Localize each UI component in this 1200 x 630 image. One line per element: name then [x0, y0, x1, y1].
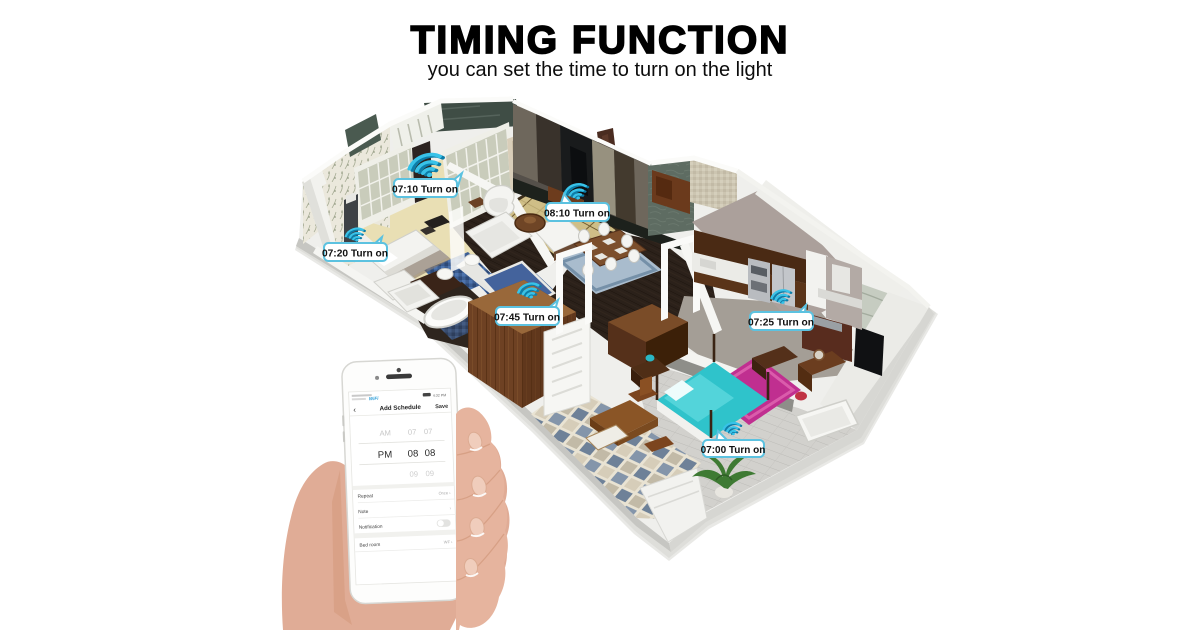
svg-text:WF ›: WF ›: [444, 539, 454, 544]
svg-text:08: 08: [407, 448, 418, 459]
svg-text:PM: PM: [378, 449, 393, 461]
svg-text:08:10 Turn on: 08:10 Turn on: [544, 209, 610, 220]
svg-text:Repeat: Repeat: [357, 493, 373, 500]
svg-text:07:00 Turn on: 07:00 Turn on: [701, 445, 766, 456]
svg-text:AM: AM: [379, 428, 391, 437]
svg-text:07:10 Turn on: 07:10 Turn on: [392, 185, 458, 196]
svg-text:09: 09: [425, 469, 434, 478]
svg-text:07:45 Turn on: 07:45 Turn on: [494, 313, 560, 324]
svg-text:WiFi: WiFi: [369, 396, 380, 401]
svg-text:08: 08: [424, 448, 435, 459]
svg-text:Note: Note: [358, 509, 369, 515]
svg-text:07:20 Turn on: 07:20 Turn on: [322, 249, 388, 260]
svg-text:07: 07: [408, 427, 417, 436]
svg-text:Once ›: Once ›: [438, 490, 451, 495]
svg-text:Bed room: Bed room: [359, 542, 380, 549]
svg-text:4:32 PM: 4:32 PM: [433, 393, 447, 398]
svg-text:Notification: Notification: [359, 524, 383, 531]
svg-text:07:25 Turn on: 07:25 Turn on: [748, 318, 814, 329]
svg-text:Save: Save: [435, 404, 448, 410]
svg-text:09: 09: [409, 469, 418, 478]
svg-text:07: 07: [424, 427, 433, 436]
